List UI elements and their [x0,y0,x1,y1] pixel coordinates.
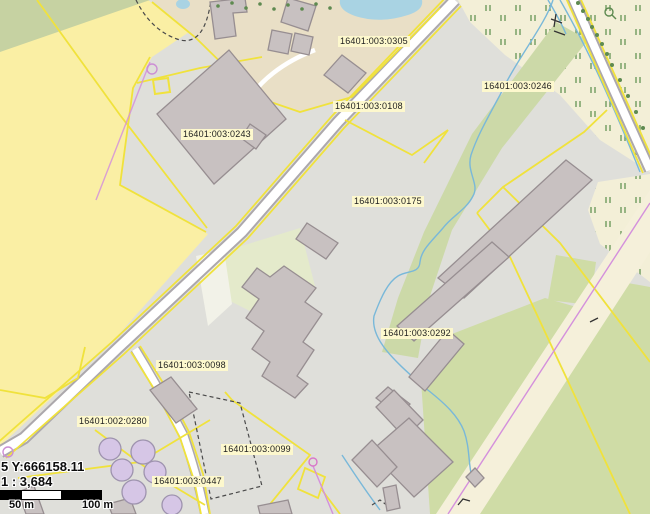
scalebar-label-50m: 50 m [9,499,34,511]
parcel-label: 16401:003:0292 [381,328,453,339]
parcel-label: 16401:003:0305 [338,36,410,47]
parcel-label: 16401:003:0246 [482,81,554,92]
scalebar [1,491,101,499]
coordinates-readout: 5 Y:666158.11 [1,459,131,474]
parcel-label: 16401:003:0098 [156,360,228,371]
map-canvas[interactable] [0,0,650,514]
parcel-label: 16401:003:0099 [221,444,293,455]
scale-ratio: 1 : 3,684 [1,474,131,489]
parcel-label: 16401:003:0447 [152,476,224,487]
scalebar-segment [22,491,61,499]
parcel-label: 16401:003:0175 [352,196,424,207]
scalebar-label-100m: 100 m [82,499,113,511]
parcel-label: 16401:003:0243 [181,129,253,140]
scalebar-labels: 50 m 100 m [1,499,131,512]
parcel-label: 16401:002:0280 [77,416,149,427]
map-status-overlay: 5 Y:666158.11 1 : 3,684 50 m 100 m [1,459,131,512]
map-viewport[interactable]: 16401:003:0305 16401:003:0108 16401:003:… [0,0,650,514]
parcel-label: 16401:003:0108 [333,101,405,112]
